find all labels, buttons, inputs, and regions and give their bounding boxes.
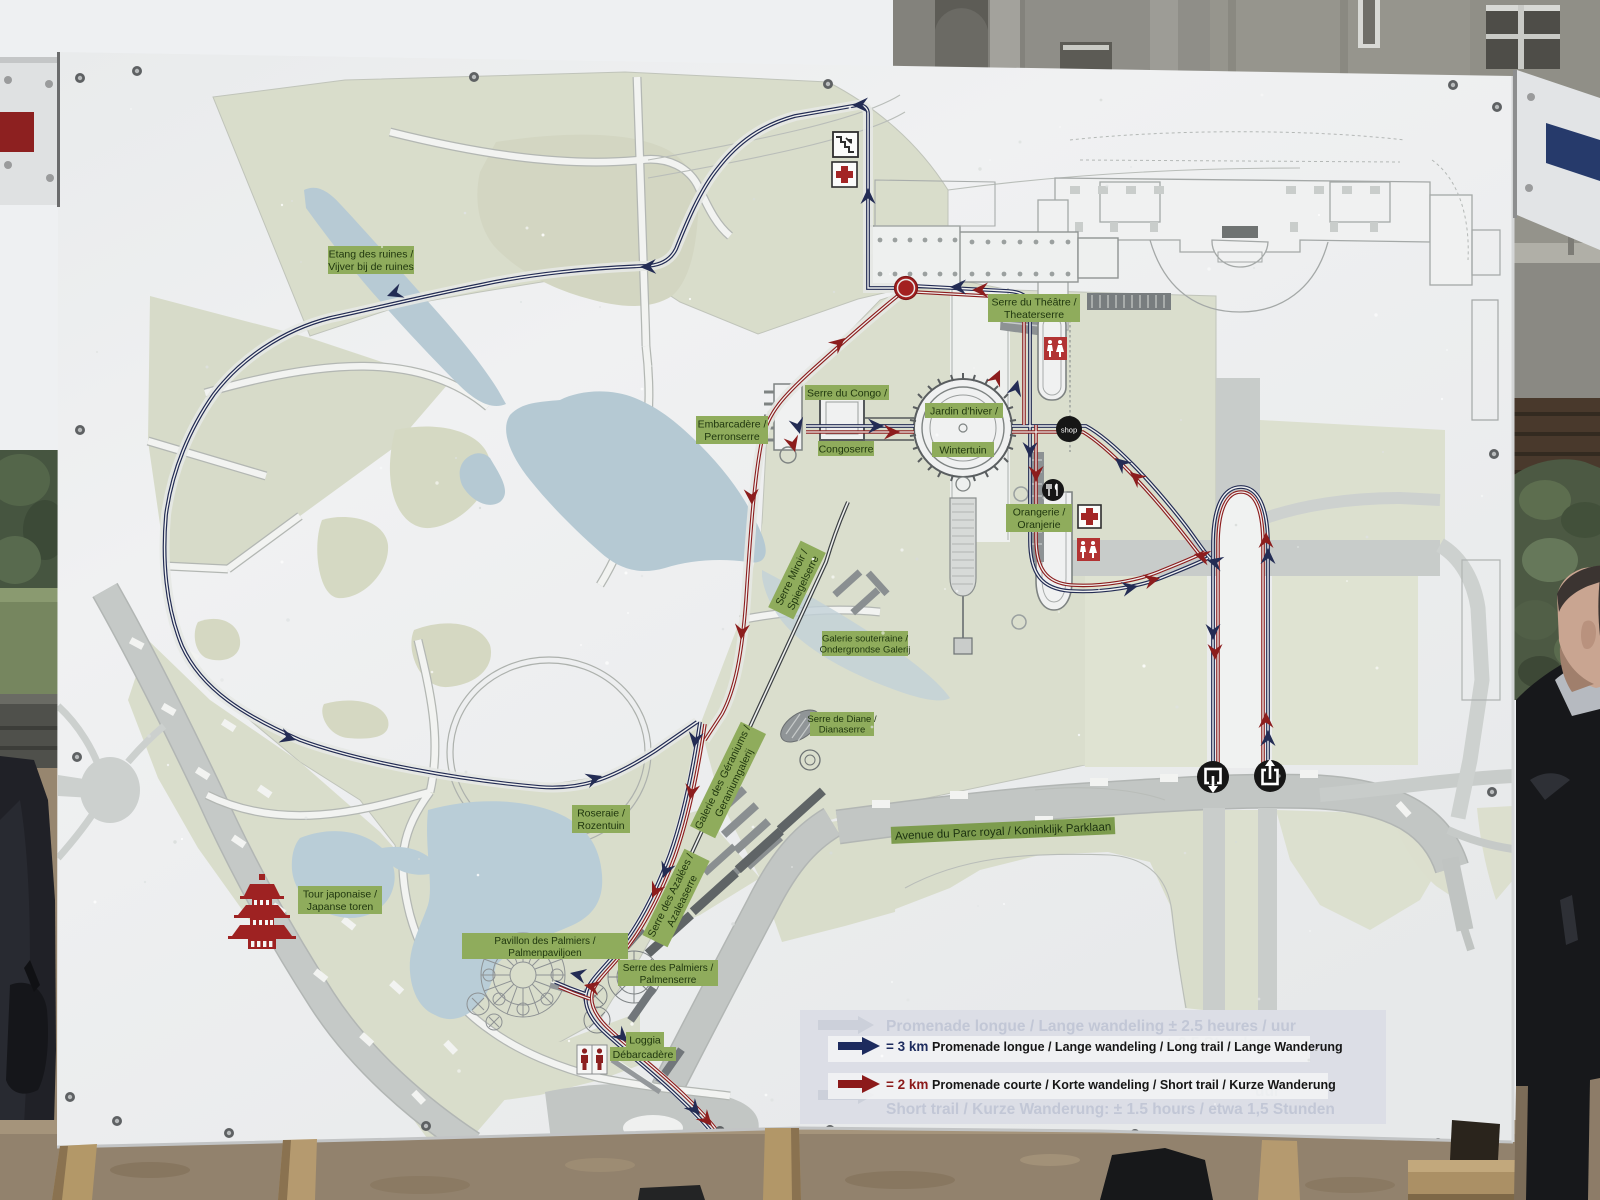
svg-text:Perronserre: Perronserre bbox=[704, 431, 760, 443]
svg-text:Jardin d'hiver /: Jardin d'hiver / bbox=[930, 406, 998, 418]
svg-text:Roseraie /: Roseraie / bbox=[577, 808, 625, 820]
svg-text:Galerie souterraine /: Galerie souterraine / bbox=[822, 634, 908, 645]
svg-text:Serre des Palmiers /: Serre des Palmiers / bbox=[623, 963, 714, 974]
svg-text:Pavillon des Palmiers /: Pavillon des Palmiers / bbox=[494, 936, 595, 947]
svg-text:Palmenpaviljoen: Palmenpaviljoen bbox=[508, 948, 581, 959]
svg-text:Orangerie /: Orangerie / bbox=[1013, 507, 1066, 519]
svg-text:= 2 km: = 2 km bbox=[886, 1077, 928, 1092]
svg-text:Theaterserre: Theaterserre bbox=[1004, 309, 1064, 321]
svg-text:shop: shop bbox=[1061, 426, 1077, 435]
svg-text:Promenade courte / Korte wande: Promenade courte / Korte wandeling / Sho… bbox=[932, 1078, 1336, 1092]
svg-text:= 3 km: = 3 km bbox=[886, 1039, 928, 1054]
svg-text:Japanse toren: Japanse toren bbox=[307, 901, 374, 913]
svg-text:Etang des ruines /: Etang des ruines / bbox=[329, 249, 414, 261]
svg-text:Short trail / Kurze Wanderung:: Short trail / Kurze Wanderung: ± 1.5 hou… bbox=[886, 1101, 1335, 1118]
svg-text:Promenade longue / Lange wande: Promenade longue / Lange wandeling / Lon… bbox=[932, 1040, 1343, 1054]
svg-text:Serre de Diane /: Serre de Diane / bbox=[807, 714, 877, 725]
svg-text:Tour japonaise /: Tour japonaise / bbox=[303, 889, 377, 901]
svg-text:Serre du Théâtre /: Serre du Théâtre / bbox=[991, 297, 1076, 309]
svg-text:Embarcadère /: Embarcadère / bbox=[698, 419, 767, 431]
svg-text:Rozentuin: Rozentuin bbox=[577, 820, 624, 832]
svg-text:Congoserre: Congoserre bbox=[819, 444, 874, 456]
svg-text:Palmenserre: Palmenserre bbox=[640, 975, 697, 986]
svg-text:Ondergrondse Galerij: Ondergrondse Galerij bbox=[820, 645, 911, 656]
svg-text:Débarcadère: Débarcadère bbox=[613, 1049, 674, 1061]
svg-text:Loggia: Loggia bbox=[629, 1035, 661, 1047]
svg-text:Vijver bij de ruines: Vijver bij de ruines bbox=[328, 261, 414, 273]
svg-text:Wintertuin: Wintertuin bbox=[939, 445, 986, 457]
svg-text:Promenade longue / Lange wande: Promenade longue / Lange wandeling ± 2.5… bbox=[886, 1018, 1296, 1035]
svg-text:Serre du Congo /: Serre du Congo / bbox=[807, 388, 887, 400]
svg-text:Oranjerie: Oranjerie bbox=[1017, 519, 1060, 531]
svg-text:Dianaserre: Dianaserre bbox=[819, 725, 865, 736]
